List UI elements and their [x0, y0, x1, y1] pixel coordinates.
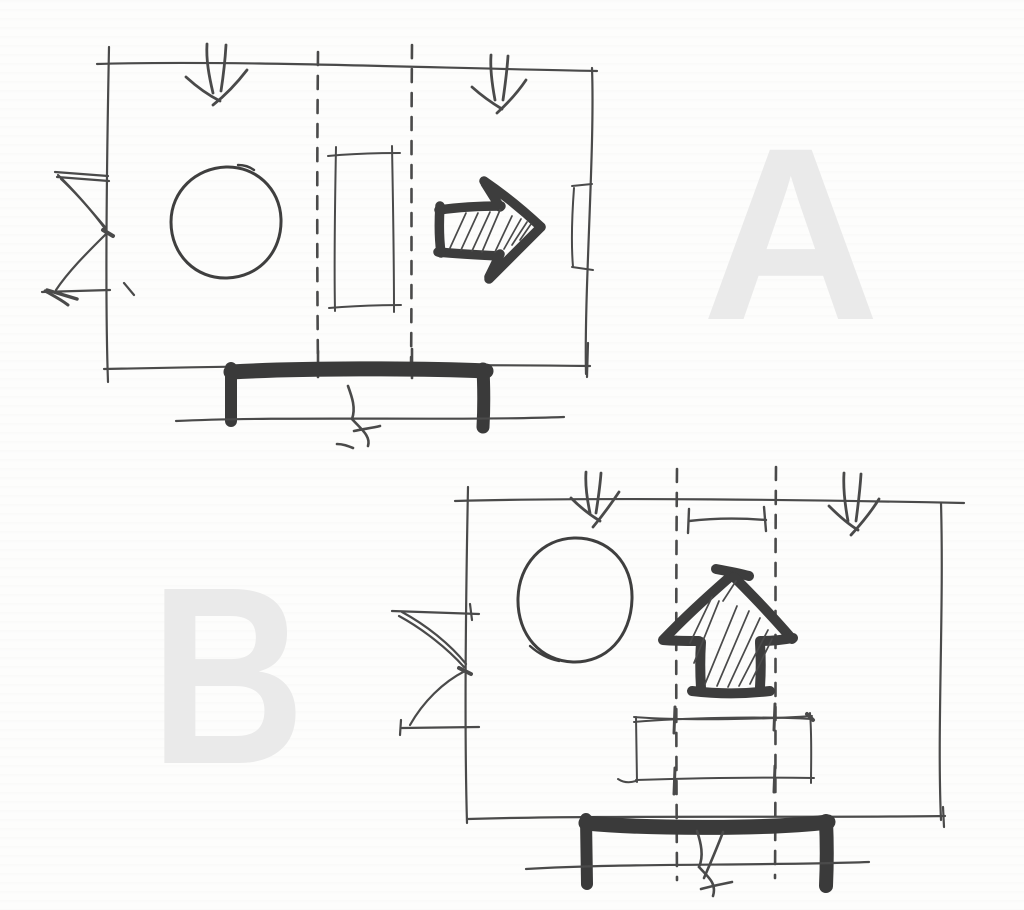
plan-a-entry-arrow-right [472, 55, 526, 113]
plan-a-threshold-hatch [176, 368, 564, 448]
plan-b-ground-line [526, 862, 869, 869]
plan-a-crosshatch-fill [238, 380, 478, 420]
plan-b-threshold-hatch [526, 819, 869, 896]
plan-b-rect-zone [618, 704, 814, 794]
plan-a-column-circle [171, 165, 281, 278]
plan-a-door-swing [42, 172, 134, 305]
plan-a-entry-arrow-left [186, 44, 247, 105]
plan-b-walls [455, 487, 964, 827]
plan-b-entry-arrow-right [829, 473, 879, 535]
floor-plan-sketch [0, 0, 1024, 910]
plan-a-flow-arrow-right [438, 181, 541, 279]
plan-a-threshold-swing-mark [337, 386, 380, 448]
plan-a-sketch [42, 44, 597, 448]
plan-b-column-circle [518, 538, 632, 662]
plan-b-flow-arrow-up [663, 569, 793, 693]
plan-b-sketch [392, 467, 964, 896]
plan-a-rect-zone [328, 146, 401, 312]
sketch-canvas: A B [0, 0, 1024, 910]
plan-a-grid-lines [317, 45, 412, 378]
plan-b-wall-opening-top [688, 507, 766, 533]
